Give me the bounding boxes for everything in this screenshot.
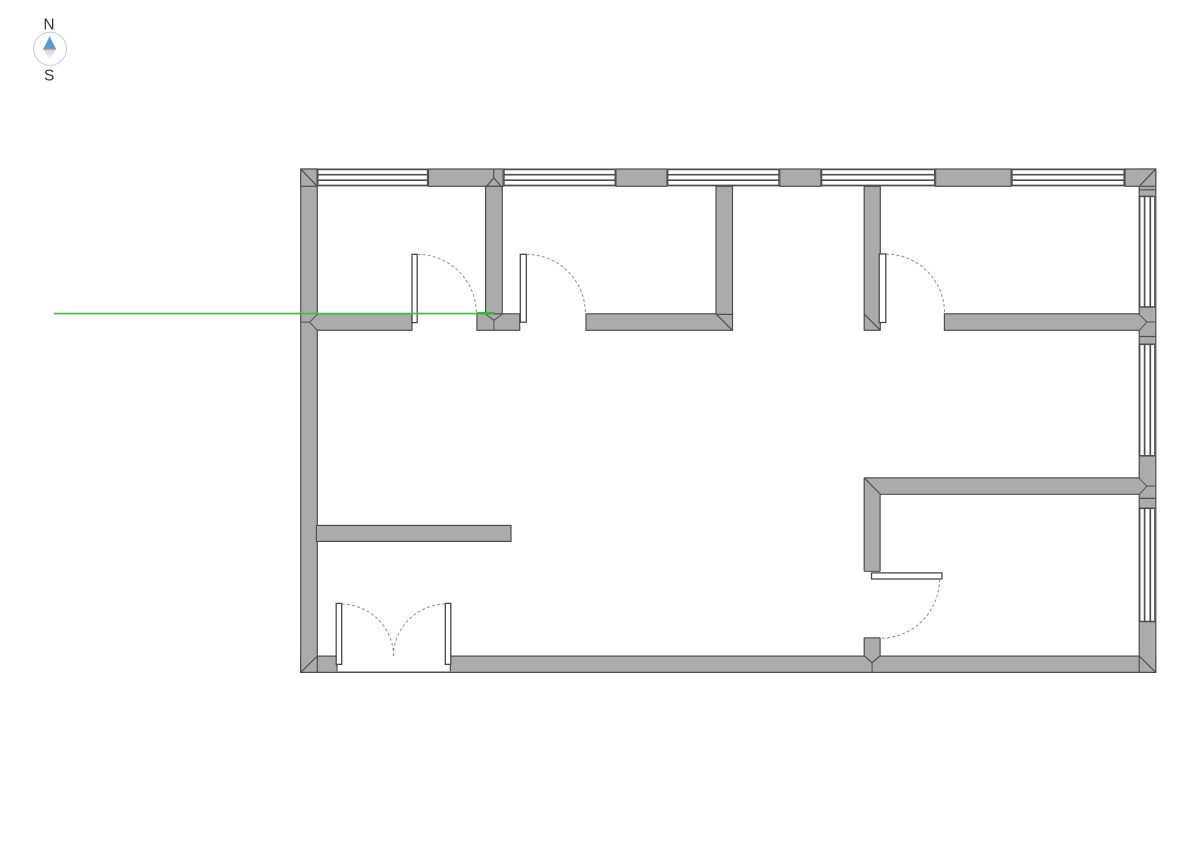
svg-text:S: S	[44, 67, 54, 84]
svg-text:N: N	[43, 16, 54, 33]
